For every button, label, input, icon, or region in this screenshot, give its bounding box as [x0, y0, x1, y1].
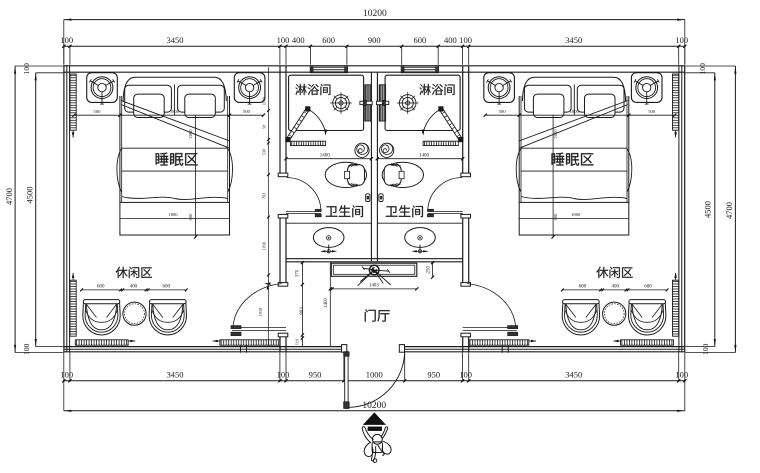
- svg-text:100: 100: [698, 63, 707, 75]
- svg-text:4700: 4700: [724, 202, 734, 219]
- svg-text:1000: 1000: [366, 370, 383, 380]
- svg-text:950: 950: [309, 370, 322, 380]
- svg-text:100: 100: [22, 63, 31, 75]
- svg-text:1400: 1400: [324, 298, 329, 309]
- svg-text:10200: 10200: [363, 9, 387, 19]
- svg-text:1800: 1800: [168, 212, 178, 217]
- svg-text:793: 793: [262, 193, 267, 199]
- svg-text:900: 900: [368, 35, 381, 45]
- svg-text:250: 250: [427, 266, 432, 274]
- svg-text:4700: 4700: [4, 188, 14, 205]
- svg-text:2000: 2000: [188, 129, 193, 139]
- svg-text:3450: 3450: [167, 35, 184, 45]
- svg-text:4500: 4500: [25, 187, 35, 204]
- svg-text:1400: 1400: [419, 153, 430, 158]
- svg-text:4500: 4500: [702, 201, 712, 218]
- svg-text:100: 100: [22, 343, 31, 355]
- svg-text:1030: 1030: [258, 308, 263, 316]
- svg-text:500: 500: [648, 109, 656, 114]
- svg-text:100: 100: [701, 343, 710, 355]
- svg-text:400: 400: [612, 285, 620, 290]
- svg-text:1403: 1403: [369, 284, 380, 289]
- svg-text:1800: 1800: [570, 109, 580, 114]
- svg-text:600: 600: [97, 285, 105, 290]
- svg-text:1100: 1100: [262, 97, 267, 105]
- svg-text:110: 110: [294, 339, 299, 345]
- svg-text:100: 100: [277, 35, 290, 45]
- svg-text:100: 100: [60, 35, 73, 45]
- svg-text:600: 600: [162, 285, 170, 290]
- svg-text:600: 600: [579, 285, 587, 290]
- svg-text:500: 500: [499, 109, 507, 114]
- svg-text:100: 100: [675, 370, 688, 380]
- svg-text:100: 100: [459, 35, 472, 45]
- svg-text:400: 400: [130, 285, 138, 290]
- svg-text:100: 100: [60, 370, 73, 380]
- svg-text:600: 600: [644, 285, 652, 290]
- svg-text:400: 400: [444, 35, 457, 45]
- svg-text:1800: 1800: [571, 212, 581, 217]
- svg-text:100: 100: [277, 370, 290, 380]
- svg-text:100: 100: [675, 35, 688, 45]
- svg-text:10200: 10200: [362, 401, 386, 411]
- svg-text:100: 100: [459, 370, 472, 380]
- svg-text:400: 400: [292, 35, 305, 45]
- svg-text:600: 600: [188, 213, 193, 221]
- svg-text:950: 950: [427, 370, 440, 380]
- svg-text:1056: 1056: [262, 242, 267, 250]
- svg-text:3450: 3450: [565, 35, 582, 45]
- svg-text:600: 600: [322, 35, 335, 45]
- svg-text:600: 600: [414, 35, 427, 45]
- svg-text:50: 50: [262, 125, 267, 129]
- svg-text:1400: 1400: [320, 153, 331, 158]
- svg-text:370: 370: [295, 269, 300, 277]
- svg-text:530: 530: [262, 149, 267, 155]
- svg-text:3450: 3450: [167, 370, 184, 380]
- svg-text:500: 500: [94, 109, 102, 114]
- svg-text:600: 600: [553, 213, 558, 221]
- svg-text:500: 500: [243, 109, 251, 114]
- svg-text:2000: 2000: [553, 129, 558, 139]
- svg-text:1800: 1800: [170, 109, 180, 114]
- svg-text:3450: 3450: [565, 370, 582, 380]
- svg-text:893: 893: [300, 307, 305, 315]
